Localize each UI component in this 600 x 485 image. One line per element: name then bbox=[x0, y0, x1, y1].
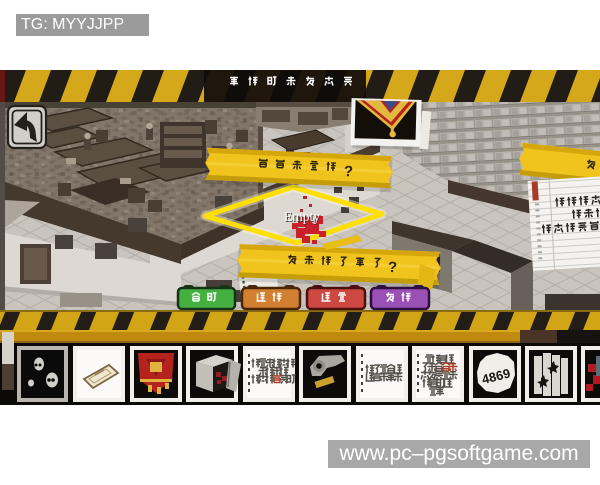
svg-text:?: ? bbox=[344, 163, 354, 180]
svg-text:?: ? bbox=[388, 259, 398, 276]
svg-text:Empty: Empty bbox=[284, 209, 320, 224]
